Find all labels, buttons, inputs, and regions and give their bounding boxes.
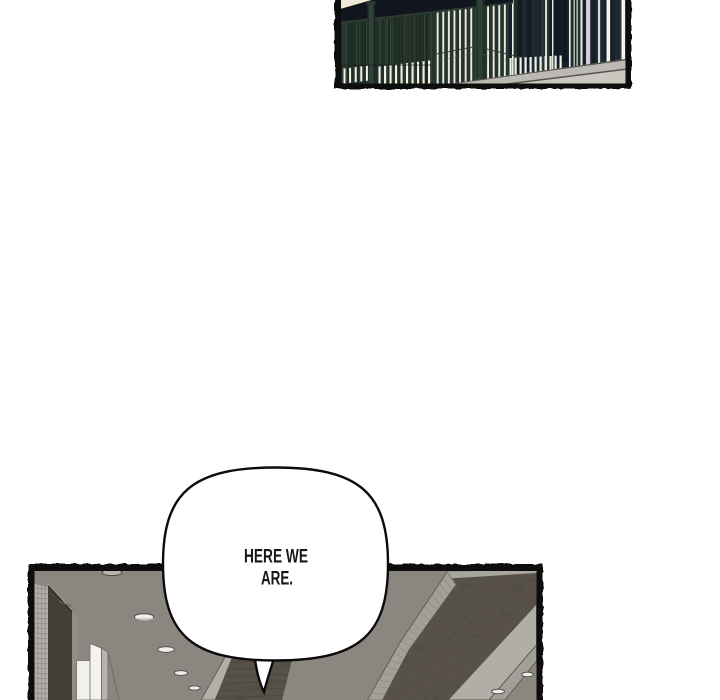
svg-text:HERE WE: HERE WE — [244, 546, 308, 568]
svg-text:ARE.: ARE. — [261, 568, 293, 590]
